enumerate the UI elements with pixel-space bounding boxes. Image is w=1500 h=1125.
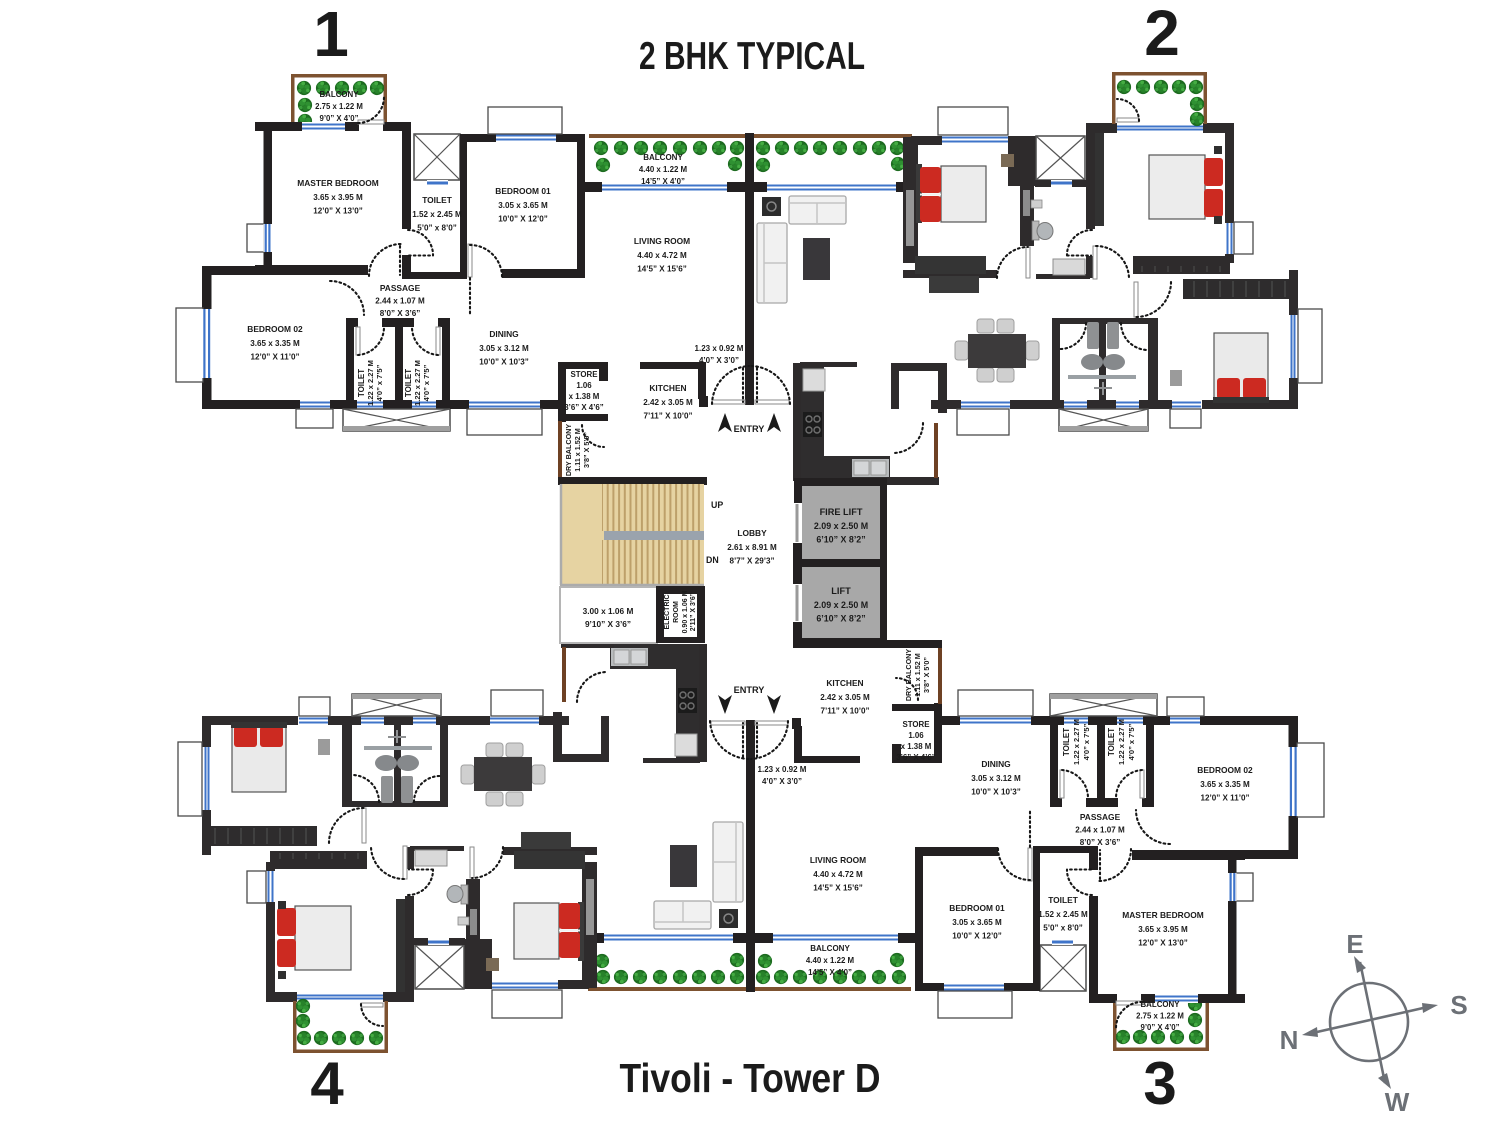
svg-text:Tivoli - Tower D: Tivoli - Tower D <box>620 1055 881 1101</box>
svg-text:12’0” X 11’0”: 12’0” X 11’0” <box>250 353 299 362</box>
svg-text:3’6” X 4’6”: 3’6” X 4’6” <box>564 403 604 412</box>
svg-text:12’0” X 13’0”: 12’0” X 13’0” <box>313 207 363 216</box>
svg-text:14’5” X 4’0”: 14’5” X 4’0” <box>641 177 685 186</box>
svg-text:1.06: 1.06 <box>908 731 924 740</box>
svg-text:BALCONY: BALCONY <box>319 90 359 99</box>
svg-text:9’0” X 4’0”: 9’0” X 4’0” <box>319 114 358 123</box>
svg-text:STORE: STORE <box>570 370 597 379</box>
svg-text:KITCHEN: KITCHEN <box>826 678 863 688</box>
svg-text:2.44 x 1.07 M: 2.44 x 1.07 M <box>375 297 425 306</box>
svg-text:2.42 x 3.05 M: 2.42 x 3.05 M <box>820 693 870 702</box>
svg-text:2 BHK TYPICAL: 2 BHK TYPICAL <box>639 35 865 78</box>
svg-text:4’0” x 7’5”: 4’0” x 7’5” <box>375 364 384 401</box>
svg-text:DN: DN <box>706 555 719 565</box>
svg-text:ROOM: ROOM <box>673 601 680 623</box>
svg-text:5’0” x 8’0”: 5’0” x 8’0” <box>417 224 457 233</box>
svg-text:BEDROOM 01: BEDROOM 01 <box>949 903 1005 913</box>
svg-text:10’0” X 12’0”: 10’0” X 12’0” <box>498 215 548 224</box>
svg-text:4’0” x 7’5”: 4’0” x 7’5” <box>1127 723 1136 760</box>
svg-text:BEDROOM 01: BEDROOM 01 <box>495 186 551 196</box>
svg-text:DINING: DINING <box>981 759 1010 769</box>
svg-text:1.23 x 0.92 M: 1.23 x 0.92 M <box>758 765 807 774</box>
svg-text:3: 3 <box>1143 1050 1176 1117</box>
svg-text:10’0” X 10’3”: 10’0” X 10’3” <box>971 788 1021 797</box>
svg-text:14’5” X 15’6”: 14’5” X 15’6” <box>813 884 863 893</box>
svg-text:3’8” X 5’0”: 3’8” X 5’0” <box>582 432 591 468</box>
svg-text:0.90 x 1.06 M: 0.90 x 1.06 M <box>682 590 689 633</box>
svg-text:9’10” X 3’6”: 9’10” X 3’6” <box>585 619 631 629</box>
svg-text:8’7” X 29’3”: 8’7” X 29’3” <box>730 557 775 566</box>
svg-text:LIVING ROOM: LIVING ROOM <box>810 855 866 865</box>
svg-text:6’10” X 8’2”: 6’10” X 8’2” <box>816 535 865 545</box>
svg-text:3.00 x 1.06 M: 3.00 x 1.06 M <box>583 606 634 616</box>
svg-text:N: N <box>1280 1025 1299 1055</box>
svg-text:1.11 x 1.52 M: 1.11 x 1.52 M <box>573 428 582 472</box>
svg-text:2.75 x 1.22 M: 2.75 x 1.22 M <box>315 102 363 111</box>
svg-text:14’5” X 4’0”: 14’5” X 4’0” <box>808 968 852 977</box>
svg-text:9’0” X 4’0”: 9’0” X 4’0” <box>1140 1023 1179 1032</box>
svg-text:2’11” X 3’6”: 2’11” X 3’6” <box>690 593 697 632</box>
svg-text:8’0” X 3’6”: 8’0” X 3’6” <box>380 309 421 318</box>
svg-text:12’0” X 13’0”: 12’0” X 13’0” <box>1138 939 1188 948</box>
svg-text:1.22 x 2.27 M: 1.22 x 2.27 M <box>1117 719 1126 765</box>
svg-text:1.23 x 0.92 M: 1.23 x 0.92 M <box>695 344 744 353</box>
svg-text:TOILET: TOILET <box>357 369 366 397</box>
svg-text:2.09 x 2.50 M: 2.09 x 2.50 M <box>814 521 868 531</box>
svg-text:3.05 x 3.12 M: 3.05 x 3.12 M <box>479 344 529 353</box>
svg-text:LIFT: LIFT <box>831 586 851 596</box>
svg-text:ELECTRIC: ELECTRIC <box>664 595 671 630</box>
svg-text:4’0” x 7’5”: 4’0” x 7’5” <box>422 364 431 401</box>
svg-text:MASTER BEDROOM: MASTER BEDROOM <box>1122 910 1203 920</box>
svg-text:1.22 x 2.27 M: 1.22 x 2.27 M <box>366 360 375 406</box>
svg-text:10’0” X 10’3”: 10’0” X 10’3” <box>479 358 529 367</box>
svg-text:1.06: 1.06 <box>576 381 592 390</box>
svg-text:3.65 x 3.95 M: 3.65 x 3.95 M <box>313 193 363 202</box>
svg-text:3.05 x 3.65 M: 3.05 x 3.65 M <box>498 201 548 210</box>
svg-text:BALCONY: BALCONY <box>643 153 683 162</box>
svg-text:DRY BALCONY: DRY BALCONY <box>904 649 913 702</box>
svg-text:1.11 x 1.52 M: 1.11 x 1.52 M <box>913 653 922 697</box>
svg-text:DINING: DINING <box>489 329 518 339</box>
svg-text:BALCONY: BALCONY <box>810 944 850 953</box>
svg-text:BEDROOM 02: BEDROOM 02 <box>1197 765 1253 775</box>
svg-text:2.75 x 1.22 M: 2.75 x 1.22 M <box>1136 1012 1184 1021</box>
svg-text:3.65 x 3.35 M: 3.65 x 3.35 M <box>1200 780 1250 789</box>
svg-text:PASSAGE: PASSAGE <box>1080 812 1121 822</box>
svg-text:BALCONY: BALCONY <box>1140 1000 1180 1009</box>
svg-text:S: S <box>1450 990 1467 1020</box>
svg-text:1: 1 <box>313 0 349 70</box>
svg-text:MASTER BEDROOM: MASTER BEDROOM <box>297 178 378 188</box>
svg-text:1.22 x 2.27 M: 1.22 x 2.27 M <box>413 360 422 406</box>
svg-text:4.40 x 1.22 M: 4.40 x 1.22 M <box>639 165 688 174</box>
svg-text:2.61 x 8.91 M: 2.61 x 8.91 M <box>727 543 777 552</box>
svg-text:TOILET: TOILET <box>1048 895 1079 905</box>
svg-text:FIRE LIFT: FIRE LIFT <box>820 507 863 517</box>
svg-text:3.05 x 3.65 M: 3.05 x 3.65 M <box>952 918 1002 927</box>
svg-text:4.40 x 4.72 M: 4.40 x 4.72 M <box>637 251 687 260</box>
svg-text:8’0” X 3’6”: 8’0” X 3’6” <box>1080 838 1121 847</box>
svg-text:LIVING ROOM: LIVING ROOM <box>634 236 690 246</box>
svg-text:KITCHEN: KITCHEN <box>649 383 686 393</box>
svg-text:3’6” X 4’6”: 3’6” X 4’6” <box>896 753 936 762</box>
svg-text:TOILET: TOILET <box>404 369 413 397</box>
svg-text:2.42 x 3.05 M: 2.42 x 3.05 M <box>643 398 693 407</box>
svg-text:TOILET: TOILET <box>1107 728 1116 756</box>
svg-text:4.40 x 4.72 M: 4.40 x 4.72 M <box>813 870 863 879</box>
svg-text:2.09 x 2.50 M: 2.09 x 2.50 M <box>814 600 868 610</box>
svg-text:1.22 x 2.27 M: 1.22 x 2.27 M <box>1072 719 1081 765</box>
svg-text:x 1.38 M: x 1.38 M <box>569 392 600 401</box>
svg-text:STORE: STORE <box>902 720 929 729</box>
svg-text:3.05 x 3.12 M: 3.05 x 3.12 M <box>971 774 1021 783</box>
svg-text:UP: UP <box>711 500 723 510</box>
svg-text:10’0” X 12’0”: 10’0” X 12’0” <box>952 932 1002 941</box>
svg-text:3’8” X 5’0”: 3’8” X 5’0” <box>922 657 931 693</box>
svg-text:TOILET: TOILET <box>422 195 453 205</box>
svg-text:W: W <box>1385 1087 1410 1117</box>
svg-text:1.52 x 2.45 M: 1.52 x 2.45 M <box>412 210 462 219</box>
svg-text:x 1.38 M: x 1.38 M <box>901 742 932 751</box>
svg-text:7’11” X 10’0”: 7’11” X 10’0” <box>820 707 869 716</box>
svg-text:ENTRY: ENTRY <box>734 685 765 695</box>
svg-text:14’5” X 15’6”: 14’5” X 15’6” <box>637 265 687 274</box>
svg-text:2: 2 <box>1144 0 1180 69</box>
svg-text:1.52 x 2.45 M: 1.52 x 2.45 M <box>1038 910 1088 919</box>
svg-text:DRY BALCONY: DRY BALCONY <box>564 424 573 477</box>
svg-text:4’0” X 3’0”: 4’0” X 3’0” <box>762 777 802 786</box>
svg-text:12’0” X 11’0”: 12’0” X 11’0” <box>1200 794 1249 803</box>
svg-text:4’0” x 7’5”: 4’0” x 7’5” <box>1082 723 1091 760</box>
svg-text:3.65 x 3.35 M: 3.65 x 3.35 M <box>250 339 300 348</box>
svg-text:2.44 x 1.07 M: 2.44 x 1.07 M <box>1075 826 1125 835</box>
svg-text:BEDROOM 02: BEDROOM 02 <box>247 324 303 334</box>
svg-text:ENTRY: ENTRY <box>734 424 765 434</box>
svg-text:4.40 x 1.22 M: 4.40 x 1.22 M <box>806 956 855 965</box>
svg-text:6’10” X 8’2”: 6’10” X 8’2” <box>816 614 865 624</box>
svg-text:LOBBY: LOBBY <box>737 528 767 538</box>
svg-text:5’0” x 8’0”: 5’0” x 8’0” <box>1043 924 1083 933</box>
svg-text:3.65 x 3.95 M: 3.65 x 3.95 M <box>1138 925 1188 934</box>
svg-text:4’0” X 3’0”: 4’0” X 3’0” <box>699 356 739 365</box>
svg-text:E: E <box>1346 929 1363 959</box>
svg-text:4: 4 <box>310 1050 344 1117</box>
svg-text:PASSAGE: PASSAGE <box>380 283 421 293</box>
svg-text:TOILET: TOILET <box>1062 728 1071 756</box>
svg-text:7’11” X 10’0”: 7’11” X 10’0” <box>643 412 692 421</box>
